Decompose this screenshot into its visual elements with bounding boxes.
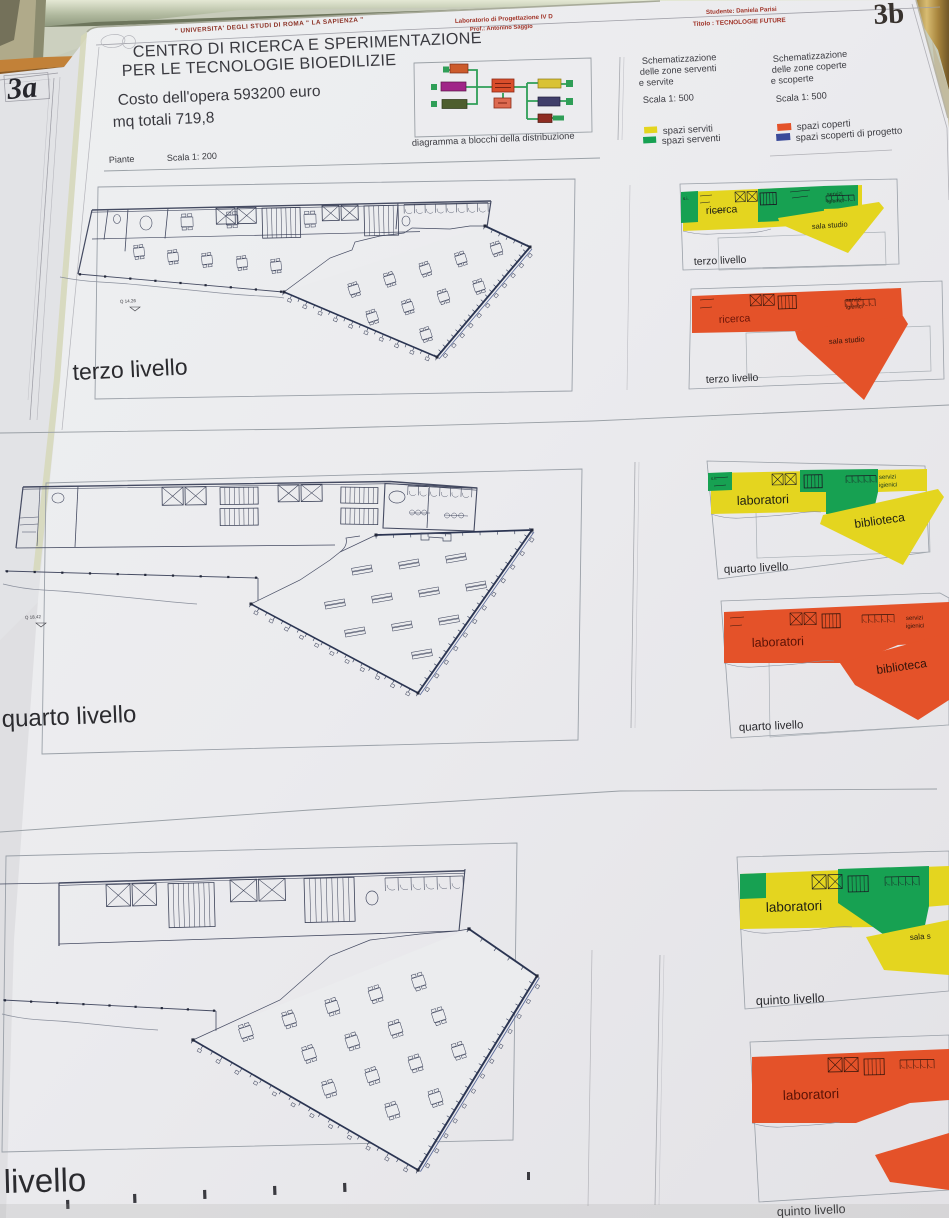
svg-text:sala s: sala s <box>910 932 931 942</box>
svg-text:igienici: igienici <box>846 304 863 311</box>
svg-text:laboratori: laboratori <box>783 1086 840 1103</box>
svg-text:terzo livello: terzo livello <box>694 254 747 268</box>
svg-text:igienici: igienici <box>906 623 925 630</box>
svg-text:e servite: e servite <box>639 76 674 88</box>
svg-text:Q 18.42: Q 18.42 <box>25 614 42 620</box>
svg-text:s.i.: s.i. <box>683 196 689 201</box>
svg-text:3a: 3a <box>5 70 39 106</box>
svg-text:servizi: servizi <box>827 191 843 198</box>
svg-text:laboratori: laboratori <box>766 898 823 915</box>
svg-text:ricerca: ricerca <box>706 203 738 217</box>
svg-text:quinto livello: quinto livello <box>756 991 825 1008</box>
svg-text:ricerca: ricerca <box>719 312 751 326</box>
svg-text:quarto livello: quarto livello <box>1 701 137 733</box>
svg-text:Q 14.26: Q 14.26 <box>120 298 137 304</box>
svg-text:igienici: igienici <box>827 198 844 205</box>
svg-text:laboratori: laboratori <box>752 634 805 650</box>
svg-text:igienici: igienici <box>879 482 898 489</box>
svg-text:laboratori: laboratori <box>737 492 790 508</box>
svg-text:3b: 3b <box>873 0 905 31</box>
svg-text:livello: livello <box>3 1161 86 1200</box>
svg-text:terzo livello: terzo livello <box>706 372 759 386</box>
svg-text:servizi: servizi <box>906 615 923 622</box>
svg-text:s.i.: s.i. <box>711 476 717 481</box>
svg-text:servizi: servizi <box>879 474 896 481</box>
svg-text:Piante: Piante <box>109 154 135 165</box>
svg-text:servizi: servizi <box>846 297 862 304</box>
